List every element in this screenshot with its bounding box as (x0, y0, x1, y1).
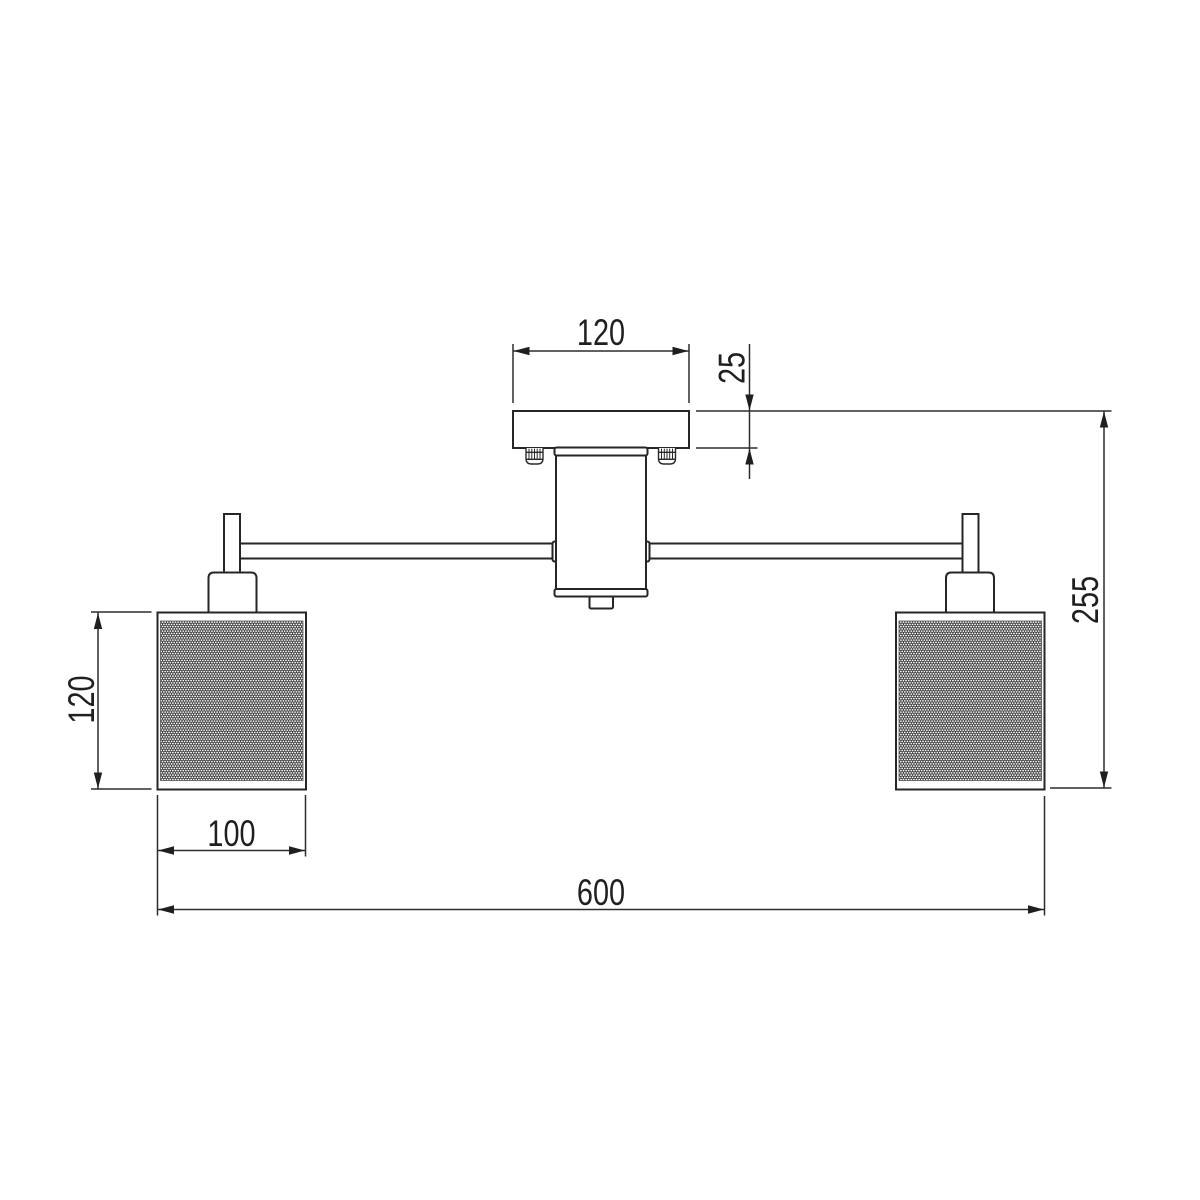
svg-text:100: 100 (207, 814, 255, 855)
svg-text:255: 255 (1066, 576, 1107, 624)
svg-text:120: 120 (577, 313, 625, 354)
svg-text:25: 25 (712, 352, 753, 384)
svg-text:120: 120 (62, 675, 103, 723)
svg-text:600: 600 (577, 873, 625, 914)
